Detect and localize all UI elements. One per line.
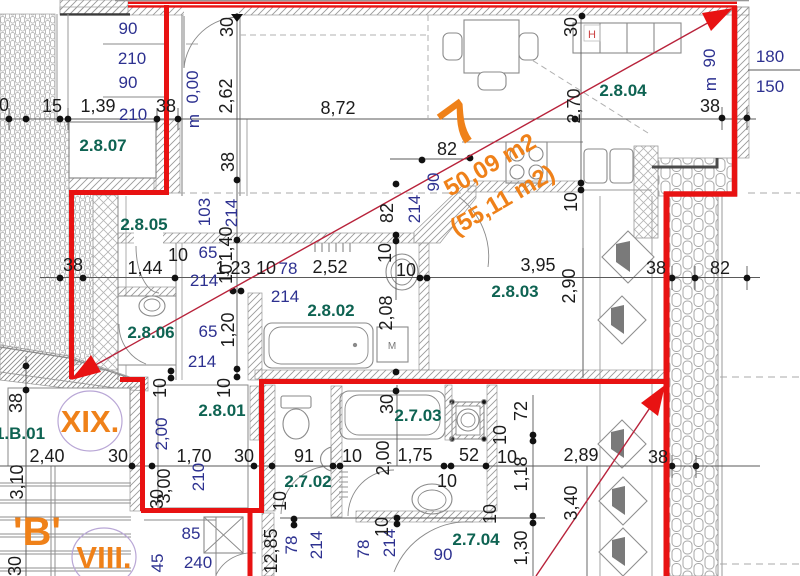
svg-text:38: 38	[63, 255, 83, 275]
svg-text:2.8.02: 2.8.02	[307, 301, 354, 320]
svg-text:90: 90	[119, 19, 138, 38]
svg-text:90: 90	[424, 173, 443, 192]
svg-text:2.8.07: 2.8.07	[79, 136, 126, 155]
svg-text:30: 30	[217, 17, 237, 37]
svg-text:38: 38	[218, 152, 238, 172]
svg-text:150: 150	[756, 77, 784, 96]
svg-text:78: 78	[282, 536, 301, 555]
svg-text:2.7.03: 2.7.03	[394, 406, 441, 425]
svg-text:38: 38	[700, 96, 720, 116]
svg-text:0,00: 0,00	[183, 70, 202, 103]
svg-text:85: 85	[182, 524, 201, 543]
svg-text:10: 10	[216, 264, 236, 284]
svg-text:10: 10	[168, 245, 188, 265]
svg-text:30: 30	[5, 556, 25, 576]
svg-text:10: 10	[561, 192, 581, 212]
svg-text:30: 30	[147, 489, 167, 509]
svg-text:38: 38	[156, 96, 176, 116]
svg-text:214: 214	[307, 531, 326, 559]
svg-text:210: 210	[119, 105, 147, 124]
svg-text:10: 10	[342, 446, 362, 466]
svg-text:10: 10	[375, 243, 395, 263]
svg-text:3,40: 3,40	[561, 485, 581, 520]
svg-text:2,90: 2,90	[559, 268, 579, 303]
svg-text:1,70: 1,70	[176, 446, 211, 466]
svg-text:103: 103	[195, 198, 214, 226]
svg-text:2,62: 2,62	[216, 78, 236, 113]
svg-text:m: m	[184, 114, 203, 128]
svg-text:2.7.02: 2.7.02	[284, 472, 331, 491]
svg-text:45: 45	[148, 554, 167, 573]
svg-text:10: 10	[372, 517, 392, 537]
svg-text:8,72: 8,72	[320, 98, 355, 118]
svg-text:3,95: 3,95	[520, 255, 555, 275]
svg-text:38: 38	[646, 258, 666, 278]
svg-text:78: 78	[354, 540, 373, 559]
svg-text:'B': 'B'	[13, 510, 61, 554]
svg-text:180: 180	[756, 47, 784, 66]
svg-text:30: 30	[234, 446, 254, 466]
svg-text:2.8.03: 2.8.03	[491, 282, 538, 301]
svg-text:VIII.: VIII.	[76, 540, 131, 575]
svg-text:214: 214	[190, 271, 218, 290]
svg-text:2,89: 2,89	[563, 445, 598, 465]
svg-text:2,70: 2,70	[564, 88, 584, 123]
svg-text:10: 10	[490, 425, 510, 445]
svg-text:30: 30	[108, 446, 128, 466]
svg-text:0: 0	[0, 95, 9, 115]
svg-text:214: 214	[405, 195, 424, 223]
svg-text:2.8.04: 2.8.04	[599, 81, 647, 100]
svg-text:1.B.01: 1.B.01	[0, 424, 45, 443]
svg-text:1,39: 1,39	[80, 96, 115, 116]
svg-text:30: 30	[561, 17, 581, 37]
svg-text:2,52: 2,52	[312, 257, 347, 277]
svg-text:10: 10	[256, 258, 276, 278]
svg-text:2.8.01: 2.8.01	[198, 401, 245, 420]
svg-text:M: M	[388, 341, 396, 352]
svg-text:214: 214	[188, 352, 216, 371]
svg-text:82: 82	[710, 258, 730, 278]
svg-text:10: 10	[150, 378, 170, 398]
svg-text:52: 52	[459, 445, 479, 465]
svg-text:240: 240	[184, 553, 212, 572]
svg-text:12,85: 12,85	[261, 528, 281, 573]
svg-text:1,40: 1,40	[216, 226, 236, 261]
svg-text:H: H	[588, 29, 596, 41]
svg-text:38: 38	[648, 447, 668, 467]
svg-text:10: 10	[270, 491, 290, 511]
svg-text:65: 65	[199, 322, 218, 341]
svg-text:2,40: 2,40	[29, 446, 64, 466]
svg-text:1,20: 1,20	[218, 312, 238, 347]
svg-text:2.7.04: 2.7.04	[452, 530, 500, 549]
svg-text:XIX.: XIX.	[61, 404, 120, 439]
svg-text:90: 90	[119, 73, 138, 92]
svg-text:10: 10	[396, 260, 416, 280]
svg-text:90: 90	[434, 545, 453, 564]
svg-text:2,08: 2,08	[376, 295, 396, 330]
svg-text:10: 10	[480, 504, 500, 524]
svg-text:15: 15	[42, 96, 62, 116]
svg-text:210: 210	[189, 463, 208, 491]
svg-text:3,10: 3,10	[7, 464, 27, 499]
svg-text:1,30: 1,30	[511, 530, 531, 565]
svg-text:82: 82	[377, 203, 397, 223]
svg-text:210: 210	[118, 49, 146, 68]
svg-text:214: 214	[222, 199, 241, 227]
svg-text:1,18: 1,18	[511, 456, 531, 491]
svg-text:78: 78	[279, 259, 298, 278]
svg-text:90: 90	[700, 49, 719, 68]
svg-text:m: m	[701, 77, 720, 91]
svg-text:2,00: 2,00	[152, 417, 171, 450]
svg-text:1,75: 1,75	[397, 445, 432, 465]
svg-text:2,00: 2,00	[373, 440, 393, 475]
svg-text:91: 91	[294, 446, 314, 466]
svg-text:1,44: 1,44	[127, 258, 162, 278]
svg-text:38: 38	[6, 393, 26, 413]
svg-text:10: 10	[437, 471, 457, 491]
svg-text:214: 214	[271, 287, 299, 306]
svg-text:72: 72	[511, 401, 531, 421]
svg-text:10: 10	[214, 378, 234, 398]
svg-text:2.8.05: 2.8.05	[120, 215, 167, 234]
svg-text:2.8.06: 2.8.06	[127, 323, 174, 342]
